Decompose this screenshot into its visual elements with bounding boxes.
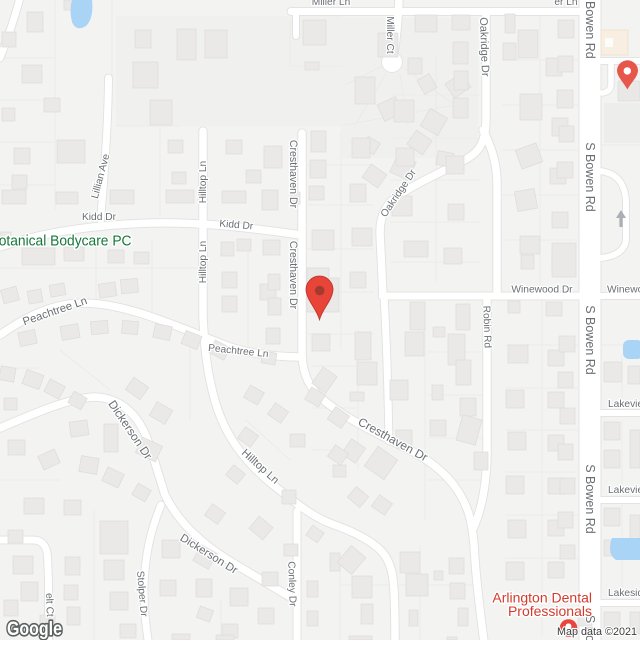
svg-text:er Ln: er Ln xyxy=(554,0,577,8)
svg-text:Winewood Dr: Winewood Dr xyxy=(511,285,573,296)
svg-text:Cresthaven Dr: Cresthaven Dr xyxy=(287,140,299,209)
svg-text:Miller Ct: Miller Ct xyxy=(384,16,395,54)
svg-text:Botanical Bodycare PC: Botanical Bodycare PC xyxy=(0,233,132,249)
svg-text:Map data ©2021: Map data ©2021 xyxy=(557,626,637,638)
svg-text:Lakevie: Lakevie xyxy=(608,399,640,410)
svg-text:Lakevie: Lakevie xyxy=(608,485,640,496)
svg-text:Miller Ln: Miller Ln xyxy=(312,0,351,8)
svg-text:Hilltop Ln: Hilltop Ln xyxy=(198,241,209,283)
svg-text:Lakesid: Lakesid xyxy=(608,588,640,599)
svg-text:Cresthaven Dr: Cresthaven Dr xyxy=(287,241,299,310)
svg-text:S Bowen Rd: S Bowen Rd xyxy=(583,305,597,375)
svg-text:S Bowen Rd: S Bowen Rd xyxy=(583,0,597,59)
svg-text:Professionals: Professionals xyxy=(508,603,592,619)
svg-text:Winewo: Winewo xyxy=(607,285,640,296)
svg-text:S Bowen Rd: S Bowen Rd xyxy=(583,142,597,212)
svg-text:Robin Rd: Robin Rd xyxy=(480,305,492,348)
svg-text:Google: Google xyxy=(7,619,62,640)
svg-text:elt Ct: elt Ct xyxy=(43,593,55,617)
svg-text:Hilltop Ln: Hilltop Ln xyxy=(198,161,209,203)
svg-text:Conley Dr: Conley Dr xyxy=(285,561,298,607)
svg-text:Kidd Dr: Kidd Dr xyxy=(82,212,117,223)
svg-text:Oakridge Dr: Oakridge Dr xyxy=(477,17,491,77)
svg-text:S Bowen Rd: S Bowen Rd xyxy=(583,464,597,534)
